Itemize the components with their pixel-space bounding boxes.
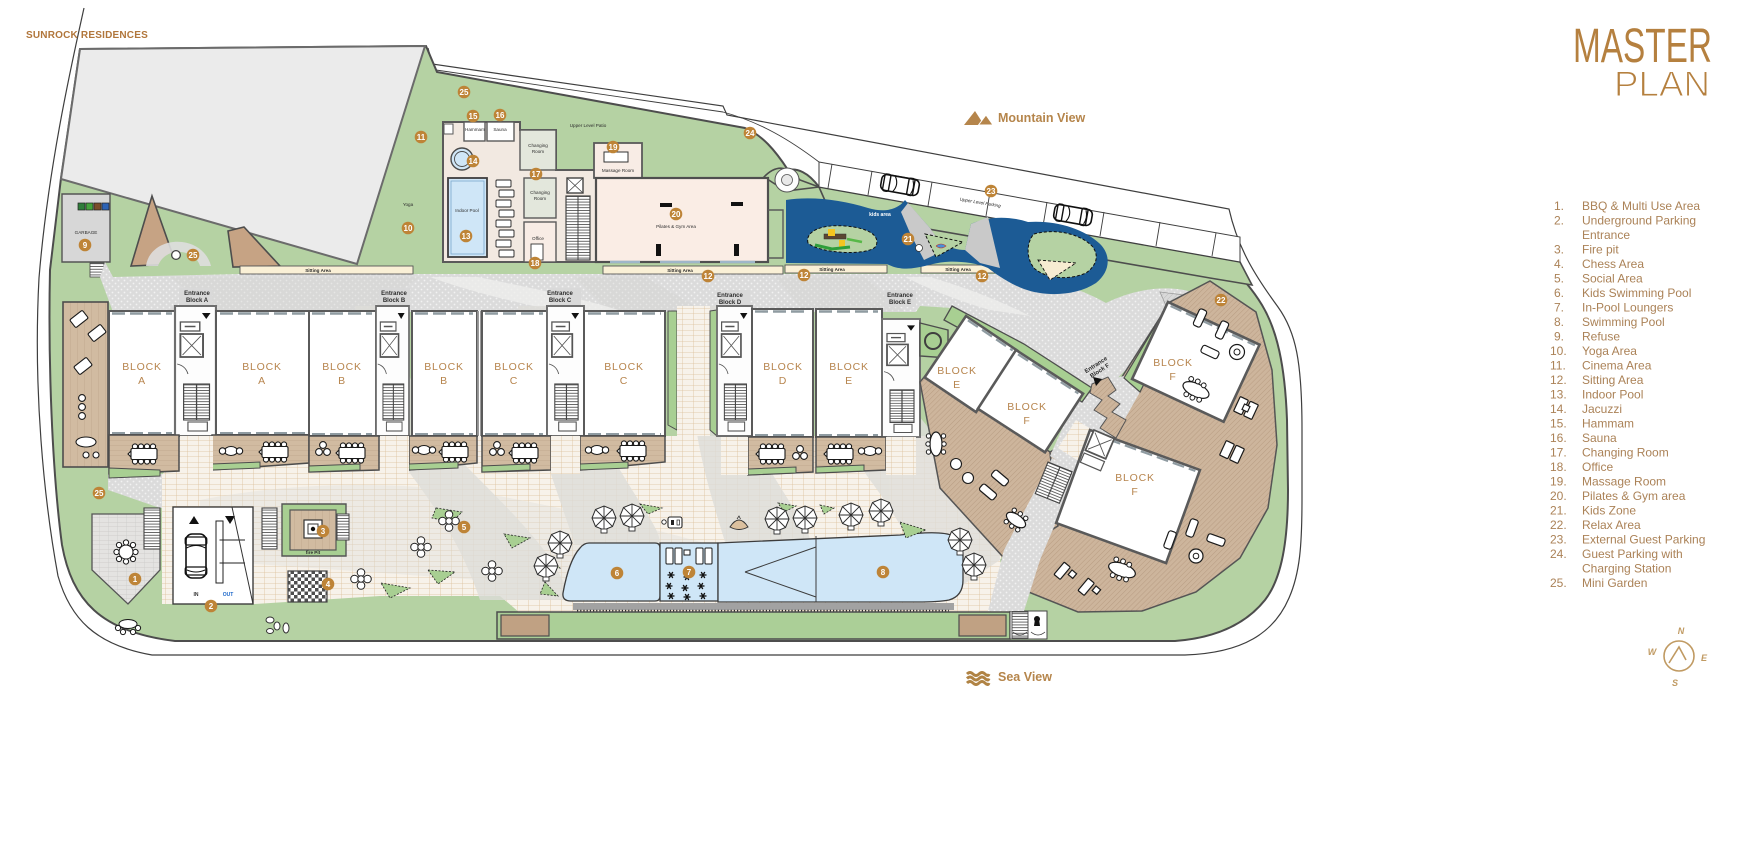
svg-text:Relax Area: Relax Area (1582, 518, 1641, 532)
svg-text:Sitting Area: Sitting Area (945, 267, 971, 272)
svg-text:Fire pit: Fire pit (1582, 243, 1619, 257)
svg-text:Pilates & Gym area: Pilates & Gym area (1582, 489, 1686, 503)
svg-text:16: 16 (496, 111, 505, 120)
svg-text:12: 12 (978, 272, 987, 281)
svg-text:23.: 23. (1550, 533, 1567, 547)
svg-text:Entrance: Entrance (381, 291, 407, 297)
svg-text:Changing Room: Changing Room (1582, 446, 1669, 460)
svg-text:6.: 6. (1554, 286, 1564, 300)
svg-text:OUT: OUT (223, 592, 234, 598)
svg-text:BLOCK: BLOCK (122, 361, 162, 373)
svg-text:BLOCK: BLOCK (829, 361, 869, 373)
svg-text:2.: 2. (1554, 214, 1564, 228)
svg-text:Block D: Block D (719, 300, 742, 306)
svg-text:8: 8 (881, 568, 886, 577)
svg-text:BLOCK: BLOCK (242, 361, 282, 373)
svg-text:Block E: Block E (889, 300, 911, 306)
svg-text:Refuse: Refuse (1582, 330, 1620, 344)
svg-text:10.: 10. (1550, 344, 1567, 358)
svg-text:Hammam: Hammam (1582, 417, 1634, 431)
svg-text:21: 21 (904, 235, 913, 244)
svg-text:1: 1 (133, 575, 138, 584)
svg-text:F: F (1023, 415, 1030, 427)
svg-text:E: E (1701, 653, 1708, 663)
svg-text:Swimming Pool: Swimming Pool (1582, 315, 1665, 329)
svg-text:14: 14 (469, 157, 478, 166)
svg-text:Sitting Area: Sitting Area (667, 268, 693, 273)
svg-text:10: 10 (404, 224, 413, 233)
svg-text:19.: 19. (1550, 475, 1567, 489)
svg-text:2: 2 (209, 602, 214, 611)
svg-text:Charging Station: Charging Station (1582, 562, 1671, 576)
svg-text:5: 5 (462, 523, 467, 532)
svg-text:11.: 11. (1550, 359, 1566, 373)
svg-text:Changing: Changing (530, 190, 550, 195)
svg-text:Pilates & Gym Area: Pilates & Gym Area (656, 224, 696, 229)
svg-text:8.: 8. (1554, 315, 1564, 329)
svg-text:Yoga: Yoga (403, 202, 414, 207)
svg-text:5.: 5. (1554, 272, 1564, 286)
svg-text:BLOCK: BLOCK (937, 365, 977, 377)
svg-text:11: 11 (417, 133, 426, 142)
svg-text:19: 19 (609, 143, 618, 152)
svg-text:BBQ & Multi Use Area: BBQ & Multi Use Area (1582, 199, 1700, 213)
svg-text:Kids Swimming Pool: Kids Swimming Pool (1582, 286, 1691, 300)
svg-text:12.: 12. (1550, 373, 1567, 387)
svg-text:B: B (440, 375, 448, 387)
svg-text:15.: 15. (1550, 417, 1567, 431)
svg-text:Sea View: Sea View (998, 670, 1052, 684)
svg-text:Entrance: Entrance (547, 291, 573, 297)
svg-text:17.: 17. (1550, 446, 1567, 460)
svg-text:Entrance: Entrance (717, 293, 743, 299)
svg-text:Room: Room (532, 149, 544, 154)
svg-text:PLAN: PLAN (1614, 65, 1710, 104)
svg-text:25: 25 (460, 88, 469, 97)
svg-text:E: E (845, 375, 853, 387)
svg-text:BLOCK: BLOCK (763, 361, 803, 373)
svg-text:BLOCK: BLOCK (604, 361, 644, 373)
svg-text:kids area: kids area (869, 212, 891, 218)
svg-text:25.: 25. (1550, 576, 1567, 590)
svg-text:fire Pit: fire Pit (306, 550, 321, 555)
svg-text:Entrance: Entrance (1582, 228, 1630, 242)
svg-text:20: 20 (672, 210, 681, 219)
svg-text:BLOCK: BLOCK (424, 361, 464, 373)
svg-text:1.: 1. (1554, 199, 1564, 213)
svg-text:16.: 16. (1550, 431, 1567, 445)
svg-text:Jacuzzi: Jacuzzi (1582, 402, 1622, 416)
svg-text:25: 25 (95, 489, 104, 498)
svg-text:Mountain View: Mountain View (998, 111, 1086, 125)
svg-text:External Guest Parking: External Guest Parking (1582, 533, 1705, 547)
svg-text:Sitting Area: Sitting Area (1582, 373, 1644, 387)
svg-text:Room: Room (534, 196, 546, 201)
svg-text:Entrance: Entrance (184, 291, 210, 297)
svg-text:Chess Area: Chess Area (1582, 257, 1644, 271)
svg-text:F: F (1169, 371, 1176, 383)
svg-text:A: A (138, 375, 146, 387)
svg-text:9: 9 (83, 241, 88, 250)
svg-text:BLOCK: BLOCK (1115, 472, 1155, 484)
svg-text:15: 15 (469, 112, 478, 121)
svg-text:GARBAGE: GARBAGE (75, 230, 98, 235)
svg-text:Underground Parking: Underground Parking (1582, 214, 1696, 228)
svg-text:Sitting Area: Sitting Area (819, 267, 845, 272)
svg-text:12: 12 (704, 272, 713, 281)
svg-text:4: 4 (326, 580, 331, 589)
svg-text:25: 25 (189, 251, 198, 260)
svg-text:S: S (1672, 678, 1678, 688)
svg-text:B: B (338, 375, 346, 387)
svg-text:12: 12 (800, 271, 809, 280)
svg-text:In-Pool Loungers: In-Pool Loungers (1582, 301, 1673, 315)
svg-text:7.: 7. (1554, 301, 1564, 315)
svg-text:22: 22 (1217, 296, 1226, 305)
svg-text:18.: 18. (1550, 460, 1567, 474)
svg-text:Mini Garden: Mini Garden (1582, 576, 1647, 590)
svg-text:13.: 13. (1550, 388, 1567, 402)
svg-text:Office: Office (532, 236, 544, 241)
svg-text:14.: 14. (1550, 402, 1567, 416)
svg-text:Entrance: Entrance (887, 293, 913, 299)
svg-text:Sauna: Sauna (493, 127, 507, 132)
svg-text:Upper Level Patio: Upper Level Patio (570, 123, 607, 128)
svg-text:C: C (620, 375, 628, 387)
svg-text:SUNROCK RESIDENCES: SUNROCK RESIDENCES (26, 30, 148, 41)
svg-text:E: E (953, 379, 961, 391)
svg-text:Massage Room: Massage Room (602, 168, 634, 173)
svg-text:23: 23 (987, 187, 996, 196)
svg-text:IN: IN (194, 592, 199, 598)
svg-text:N: N (1678, 626, 1685, 636)
svg-text:21.: 21. (1550, 504, 1567, 518)
svg-text:18: 18 (531, 259, 540, 268)
svg-text:D: D (779, 375, 787, 387)
svg-text:Block A: Block A (186, 298, 209, 304)
svg-text:20.: 20. (1550, 489, 1567, 503)
svg-text:Sauna: Sauna (1582, 431, 1617, 445)
svg-text:Sitting Area: Sitting Area (305, 268, 331, 273)
svg-text:BLOCK: BLOCK (494, 361, 534, 373)
svg-text:C: C (510, 375, 518, 387)
svg-text:BLOCK: BLOCK (1007, 401, 1047, 413)
svg-text:22.: 22. (1550, 518, 1567, 532)
svg-text:Block B: Block B (383, 298, 406, 304)
svg-text:BLOCK: BLOCK (1153, 357, 1193, 369)
svg-text:A: A (258, 375, 266, 387)
svg-text:Office: Office (1582, 460, 1613, 474)
svg-text:24.: 24. (1550, 547, 1567, 561)
svg-text:Guest Parking with: Guest Parking with (1582, 547, 1683, 561)
svg-text:Massage Room: Massage Room (1582, 475, 1666, 489)
svg-text:BLOCK: BLOCK (322, 361, 362, 373)
svg-text:17: 17 (532, 170, 541, 179)
svg-text:Kids Zone: Kids Zone (1582, 504, 1636, 518)
svg-text:9.: 9. (1554, 330, 1564, 344)
svg-text:13: 13 (462, 232, 471, 241)
svg-text:24: 24 (746, 129, 755, 138)
svg-text:Block C: Block C (549, 298, 572, 304)
svg-text:Hammam: Hammam (465, 127, 485, 132)
svg-text:Social Area: Social Area (1582, 272, 1643, 286)
svg-text:3.: 3. (1554, 243, 1564, 257)
svg-text:Changing: Changing (528, 143, 548, 148)
svg-text:F: F (1131, 486, 1138, 498)
svg-text:6: 6 (615, 569, 620, 578)
svg-text:Indoor Pool: Indoor Pool (1582, 388, 1643, 402)
svg-text:4.: 4. (1554, 257, 1564, 271)
svg-text:7: 7 (687, 568, 692, 577)
svg-text:3: 3 (321, 527, 326, 536)
svg-text:Cinema Area: Cinema Area (1582, 359, 1652, 373)
svg-text:Indoor Pool: Indoor Pool (455, 208, 479, 213)
svg-text:Yoga Area: Yoga Area (1582, 344, 1637, 358)
